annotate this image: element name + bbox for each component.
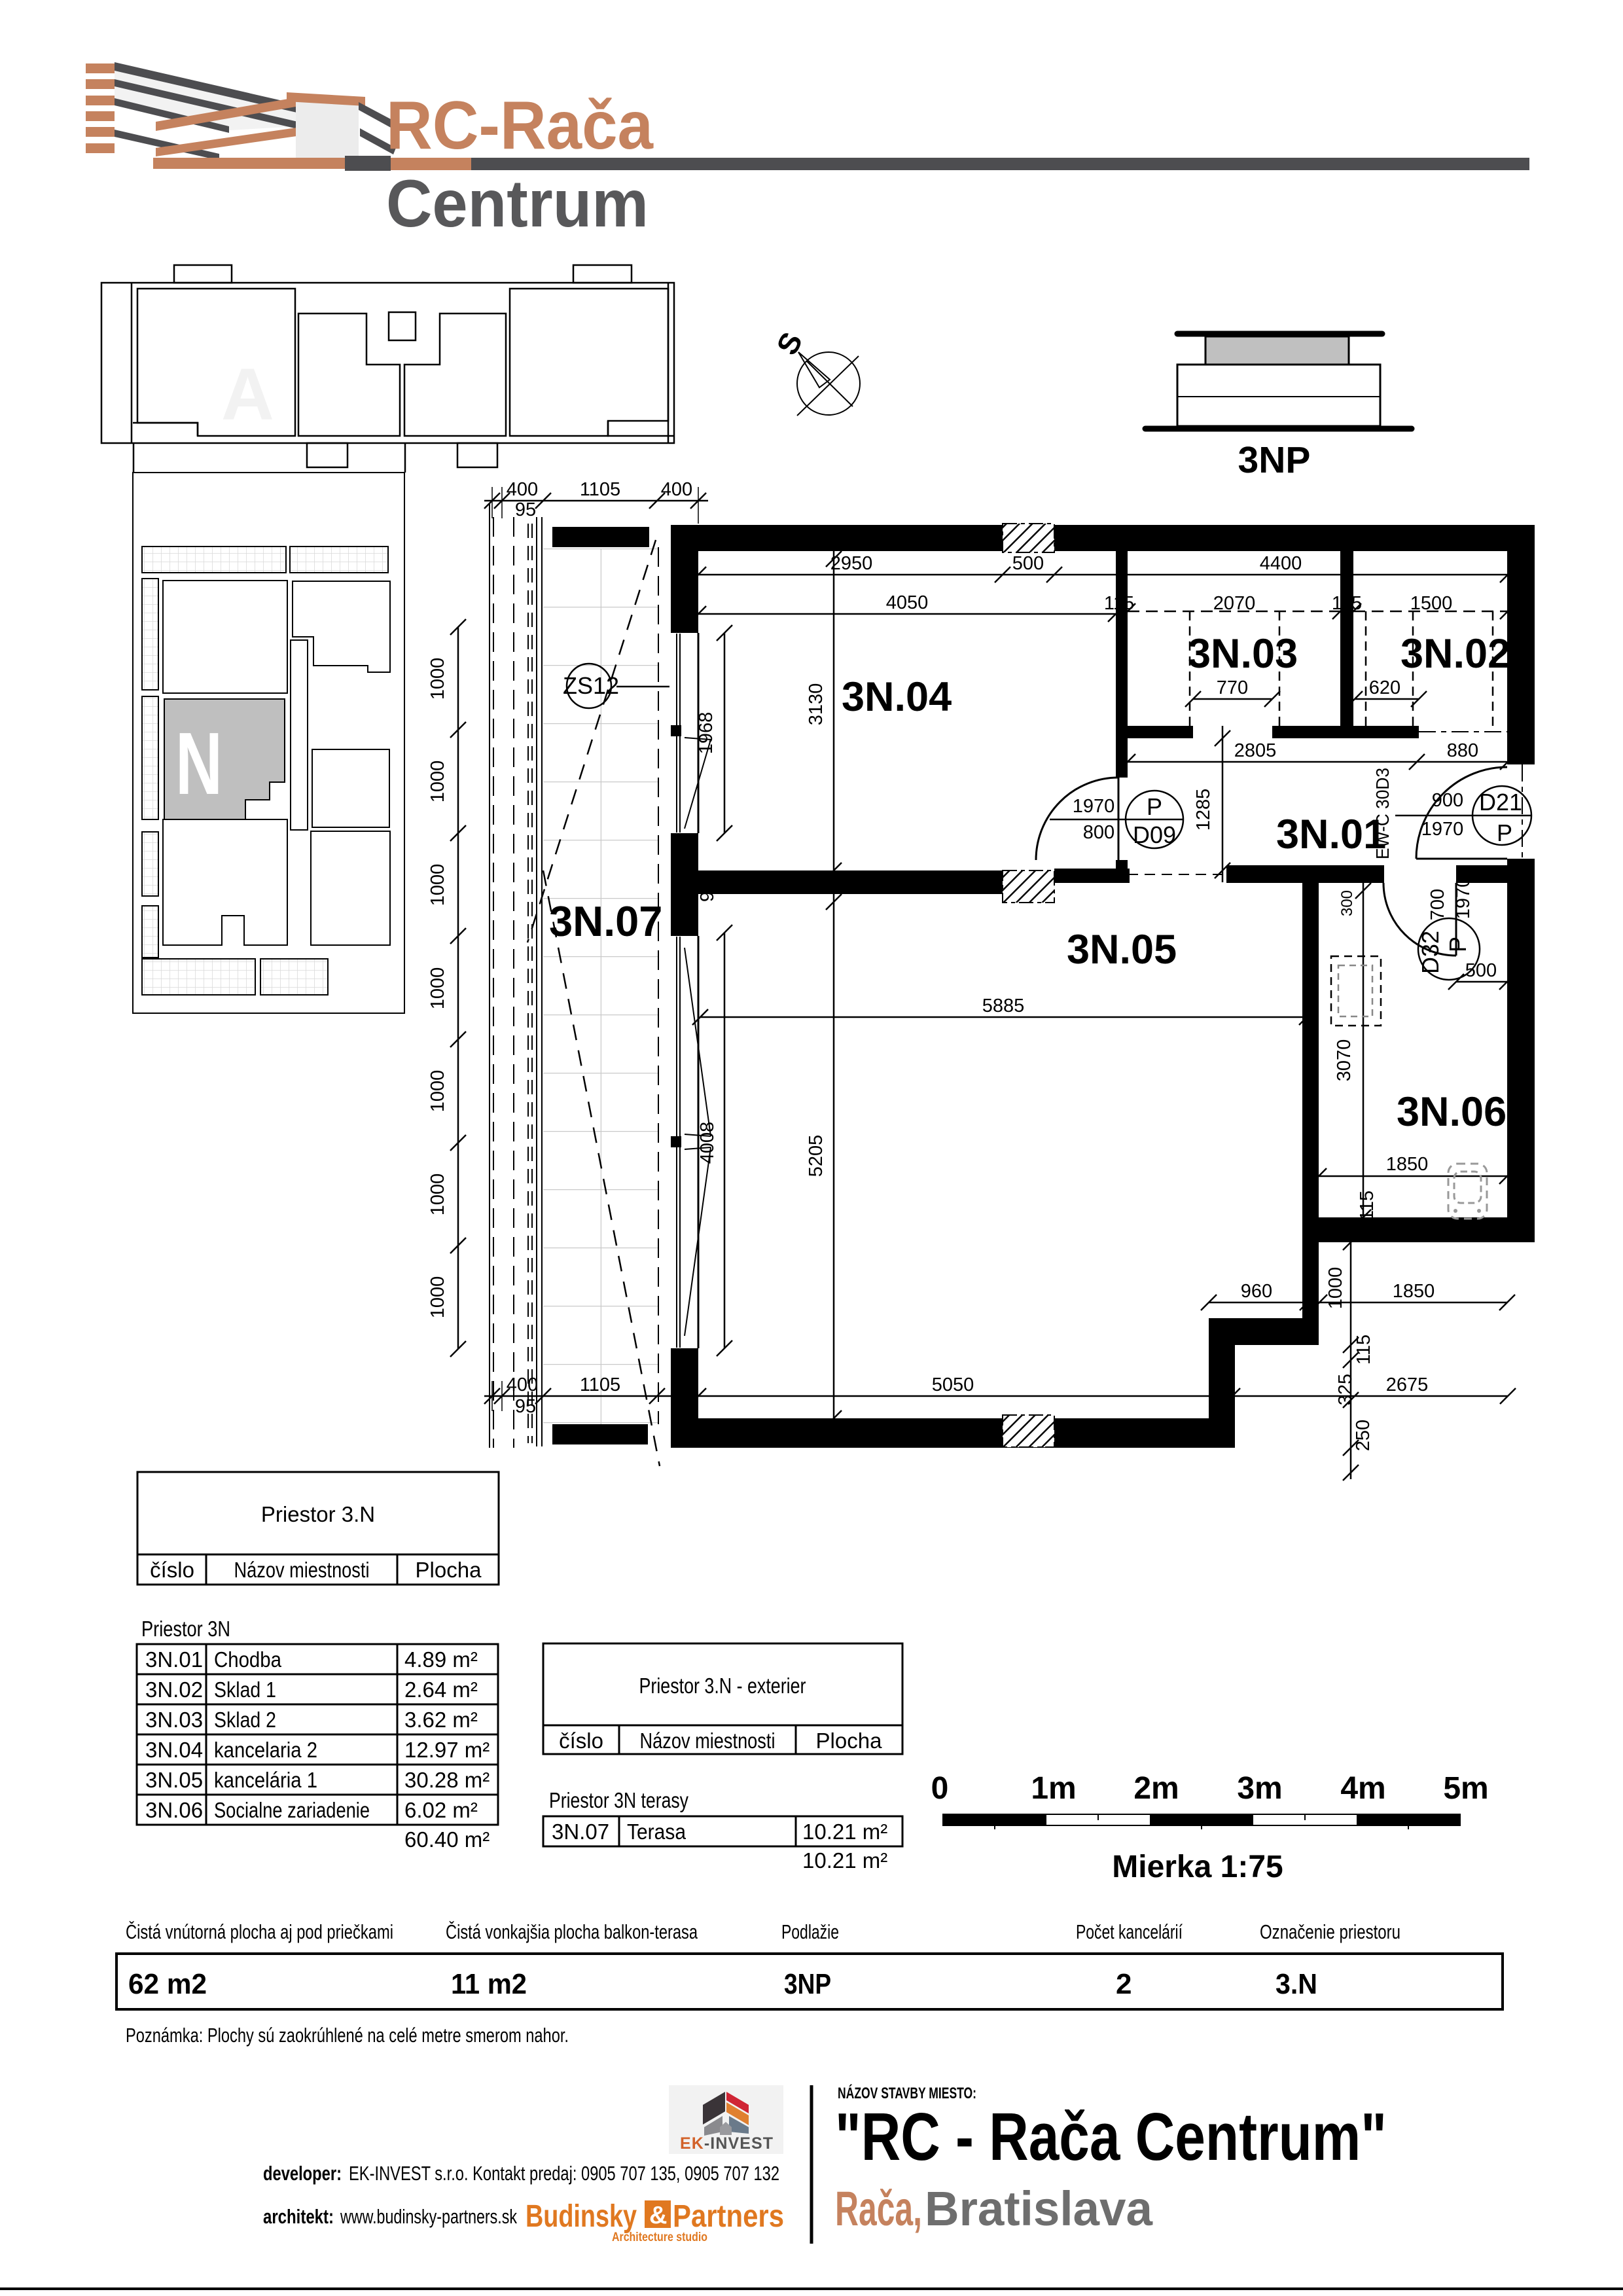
svg-text:4m: 4m — [1340, 1771, 1385, 1806]
svg-text:Priestor 3N terasy: Priestor 3N terasy — [549, 1788, 688, 1812]
svg-text:3m: 3m — [1237, 1771, 1282, 1806]
svg-text:115: 115 — [1332, 593, 1362, 614]
svg-text:1000: 1000 — [427, 761, 448, 803]
svg-text:12.97 m²: 12.97 m² — [404, 1738, 490, 1762]
svg-text:115: 115 — [1353, 1335, 1374, 1365]
svg-text:1850: 1850 — [1386, 1154, 1429, 1175]
svg-text:115: 115 — [1357, 1191, 1378, 1221]
svg-text:60.40 m²: 60.40 m² — [404, 1827, 490, 1852]
svg-text:3N.02: 3N.02 — [1400, 631, 1510, 677]
svg-text:1000: 1000 — [427, 967, 448, 1010]
svg-text:EK-INVEST s.r.o. Kontakt pred: EK-INVEST s.r.o. Kontakt predaj: 0905 70… — [349, 2162, 779, 2185]
svg-text:1000: 1000 — [427, 1070, 448, 1113]
svg-text:1000: 1000 — [1325, 1267, 1346, 1310]
svg-text:2950: 2950 — [830, 553, 873, 574]
svg-text:1850: 1850 — [1393, 1281, 1435, 1302]
svg-text:D09: D09 — [1133, 821, 1176, 848]
svg-text:Plocha: Plocha — [816, 1729, 883, 1753]
svg-text:1968: 1968 — [696, 712, 717, 755]
svg-text:RC-Rača: RC-Rača — [386, 88, 654, 164]
svg-text:250: 250 — [1353, 1420, 1374, 1451]
svg-text:98: 98 — [697, 881, 718, 902]
svg-text:2.64 m²: 2.64 m² — [404, 1677, 478, 1702]
svg-text:10.21 m²: 10.21 m² — [802, 1820, 887, 1844]
svg-text:1500: 1500 — [1410, 593, 1453, 614]
svg-text:číslo: číslo — [150, 1558, 194, 1582]
svg-text:Bratislava: Bratislava — [925, 2181, 1153, 2236]
svg-text:10.21 m²: 10.21 m² — [802, 1848, 887, 1873]
svg-text:číslo: číslo — [559, 1729, 603, 1753]
svg-text:4050: 4050 — [886, 592, 929, 613]
svg-text:770: 770 — [1217, 677, 1248, 698]
svg-text:4.89 m²: 4.89 m² — [404, 1647, 478, 1672]
svg-text:ZS12: ZS12 — [563, 672, 619, 699]
svg-text:S: S — [770, 327, 809, 361]
svg-text:&: & — [649, 2202, 667, 2229]
svg-text:architekt:: architekt: — [263, 2205, 334, 2228]
svg-text:1000: 1000 — [427, 1174, 448, 1216]
svg-text:3N.06: 3N.06 — [145, 1798, 203, 1822]
svg-text:kancelaria 2: kancelaria 2 — [214, 1738, 317, 1762]
svg-text:1970: 1970 — [1073, 796, 1115, 817]
svg-text:Priestor 3.N - exterier: Priestor 3.N - exterier — [639, 1674, 806, 1698]
svg-text:700: 700 — [1427, 889, 1448, 920]
svg-text:Socialne zariadenie: Socialne zariadenie — [214, 1798, 370, 1822]
svg-text:3N.05: 3N.05 — [1067, 927, 1177, 973]
svg-text:EK-INVEST: EK-INVEST — [680, 2134, 773, 2153]
svg-text:3N.07: 3N.07 — [552, 1820, 609, 1844]
svg-text:400: 400 — [507, 1374, 538, 1395]
svg-text:500: 500 — [1465, 960, 1497, 981]
svg-text:900: 900 — [1432, 790, 1463, 811]
svg-text:Partners: Partners — [673, 2199, 784, 2234]
svg-text:Centrum: Centrum — [386, 166, 649, 241]
svg-text:95: 95 — [515, 499, 536, 520]
svg-text:3N.05: 3N.05 — [145, 1768, 203, 1792]
svg-text:"RC - Rača Centrum": "RC - Rača Centrum" — [835, 2099, 1387, 2174]
svg-text:2070: 2070 — [1213, 593, 1256, 614]
svg-text:Priestor 3.N: Priestor 3.N — [261, 1502, 375, 1526]
svg-text:3N.03: 3N.03 — [145, 1708, 203, 1732]
svg-text:developer:: developer: — [263, 2162, 342, 2185]
svg-text:N: N — [175, 714, 223, 813]
svg-text:Čistá vnútorná plocha aj pod p: Čistá vnútorná plocha aj pod priečkami — [126, 1920, 393, 1943]
svg-text:6.02 m²: 6.02 m² — [404, 1798, 478, 1822]
svg-text:Sklad 1: Sklad 1 — [214, 1677, 276, 1702]
svg-text:D21: D21 — [1479, 789, 1522, 816]
svg-text:3NP: 3NP — [784, 1968, 831, 2000]
svg-text:1285: 1285 — [1193, 789, 1214, 831]
svg-text:800: 800 — [1083, 822, 1115, 843]
svg-text:EW-C 30D3: EW-C 30D3 — [1372, 768, 1393, 859]
svg-text:Mierka 1:75: Mierka 1:75 — [1112, 1850, 1283, 1884]
svg-text:500: 500 — [1012, 553, 1044, 574]
svg-text:2m: 2m — [1133, 1771, 1179, 1806]
svg-text:1000: 1000 — [427, 864, 448, 906]
svg-text:95: 95 — [515, 1396, 536, 1417]
svg-text:Počet kancelárií: Počet kancelárií — [1076, 1920, 1183, 1943]
svg-text:1000: 1000 — [427, 1276, 448, 1319]
svg-text:400: 400 — [507, 479, 538, 500]
svg-text:3.62 m²: 3.62 m² — [404, 1708, 478, 1732]
svg-text:Označenie priestoru: Označenie priestoru — [1260, 1920, 1400, 1943]
svg-text:115: 115 — [1104, 593, 1134, 614]
svg-text:2: 2 — [1116, 1968, 1132, 2000]
svg-text:Architecture studio: Architecture studio — [612, 2231, 707, 2244]
svg-text:325: 325 — [1335, 1374, 1356, 1405]
svg-text:3N.01: 3N.01 — [145, 1647, 203, 1672]
svg-text:1m: 1m — [1031, 1771, 1076, 1806]
svg-text:960: 960 — [1241, 1281, 1272, 1302]
svg-text:5m: 5m — [1443, 1771, 1488, 1806]
svg-text:3130: 3130 — [806, 683, 827, 726]
svg-text:P: P — [1497, 819, 1512, 846]
svg-text:3NP: 3NP — [1238, 439, 1311, 481]
svg-text:11 m2: 11 m2 — [451, 1968, 527, 2000]
svg-text:Názov miestnosti: Názov miestnosti — [640, 1729, 776, 1753]
svg-text:5050: 5050 — [932, 1374, 974, 1395]
svg-text:3N.01: 3N.01 — [1276, 812, 1386, 857]
svg-text:Budinsky: Budinsky — [526, 2199, 637, 2234]
svg-text:1970: 1970 — [1453, 877, 1474, 920]
svg-text:3N.03: 3N.03 — [1188, 631, 1298, 677]
svg-text:A: A — [221, 353, 274, 435]
svg-text:D32: D32 — [1417, 931, 1444, 974]
svg-text:4400: 4400 — [1260, 553, 1302, 574]
svg-text:5205: 5205 — [806, 1135, 827, 1177]
svg-text:2675: 2675 — [1386, 1374, 1429, 1395]
svg-text:0: 0 — [931, 1771, 949, 1806]
svg-text:3N.06: 3N.06 — [1397, 1089, 1507, 1135]
svg-text:3N.04: 3N.04 — [842, 674, 952, 720]
svg-text:www.budinsky-partners.sk: www.budinsky-partners.sk — [340, 2205, 517, 2228]
svg-text:1000: 1000 — [427, 658, 448, 700]
svg-text:300: 300 — [1338, 890, 1356, 916]
svg-text:Priestor 3N: Priestor 3N — [141, 1617, 230, 1641]
svg-text:3N.02: 3N.02 — [145, 1677, 203, 1702]
svg-text:1105: 1105 — [580, 1374, 620, 1395]
svg-text:620: 620 — [1369, 677, 1400, 698]
svg-text:62 m2: 62 m2 — [128, 1968, 207, 2000]
svg-text:1105: 1105 — [580, 479, 620, 500]
svg-text:3.N: 3.N — [1275, 1968, 1317, 2000]
svg-text:5885: 5885 — [982, 996, 1025, 1016]
svg-text:400: 400 — [661, 479, 692, 500]
svg-text:kancelária 1: kancelária 1 — [214, 1768, 317, 1792]
svg-text:3070: 3070 — [1334, 1039, 1355, 1082]
svg-text:Čistá vonkajšia plocha balkon-: Čistá vonkajšia plocha balkon-terasa — [446, 1920, 698, 1943]
svg-text:Podlažie: Podlažie — [781, 1920, 839, 1943]
svg-text:1970: 1970 — [1421, 819, 1464, 840]
svg-text:Sklad 2: Sklad 2 — [214, 1708, 276, 1732]
svg-text:Rača,: Rača, — [835, 2181, 922, 2236]
svg-text:Chodba: Chodba — [214, 1647, 282, 1672]
svg-text:Plocha: Plocha — [416, 1558, 482, 1582]
svg-text:880: 880 — [1447, 740, 1478, 761]
svg-text:3N.04: 3N.04 — [145, 1738, 203, 1762]
svg-text:Terasa: Terasa — [627, 1820, 687, 1844]
svg-text:3N.07: 3N.07 — [549, 897, 662, 945]
svg-text:2805: 2805 — [1234, 740, 1277, 761]
svg-text:30.28 m²: 30.28 m² — [404, 1768, 490, 1792]
svg-text:Názov miestnosti: Názov miestnosti — [234, 1558, 370, 1582]
svg-text:4008: 4008 — [697, 1122, 718, 1164]
svg-text:Poznámka: Plochy sú zaokrúhlen: Poznámka: Plochy sú zaokrúhlené na celé … — [126, 2024, 569, 2047]
svg-text:P: P — [1147, 793, 1162, 820]
svg-text:P: P — [1444, 937, 1471, 952]
